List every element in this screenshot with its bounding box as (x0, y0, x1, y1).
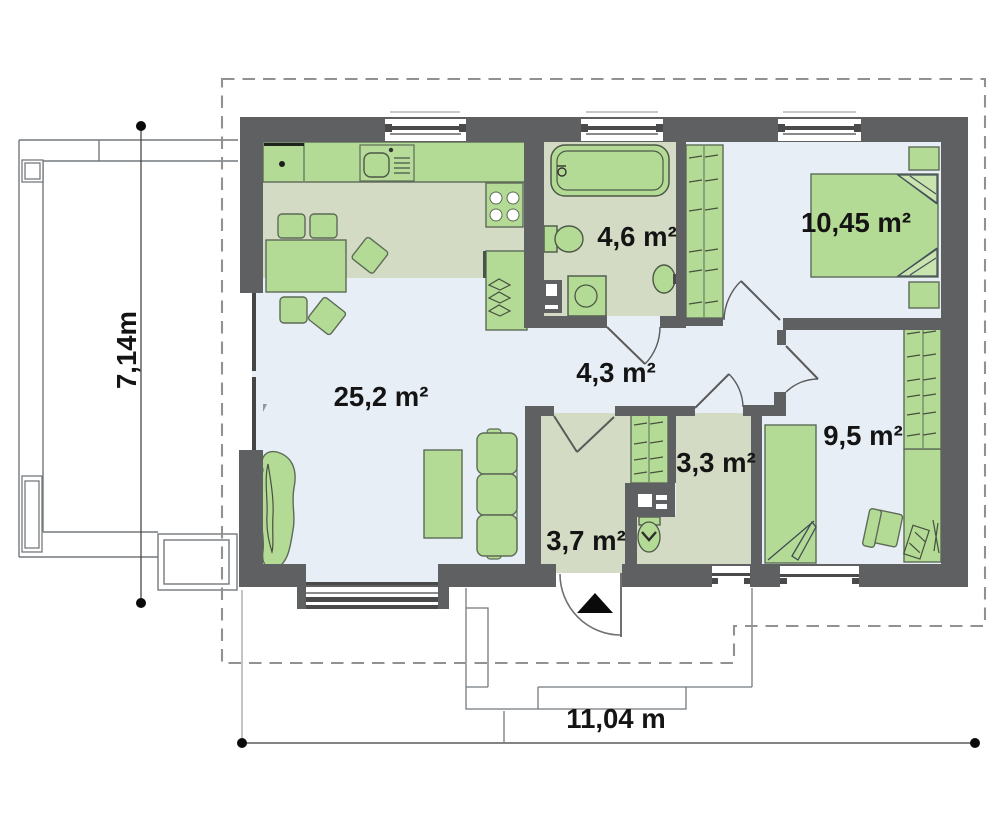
svg-text:4,3 m²: 4,3 m² (576, 357, 655, 388)
svg-text:4,6 m²: 4,6 m² (597, 221, 676, 252)
svg-text:3,7 m²: 3,7 m² (546, 525, 625, 556)
svg-text:3,3 m²: 3,3 m² (676, 447, 755, 478)
svg-text:7,14m: 7,14m (111, 311, 142, 389)
svg-text:25,2 m²: 25,2 m² (334, 381, 429, 412)
svg-text:11,04 m: 11,04 m (566, 703, 665, 734)
svg-text:10,45 m²: 10,45 m² (801, 207, 911, 238)
svg-text:9,5 m²: 9,5 m² (823, 420, 902, 451)
